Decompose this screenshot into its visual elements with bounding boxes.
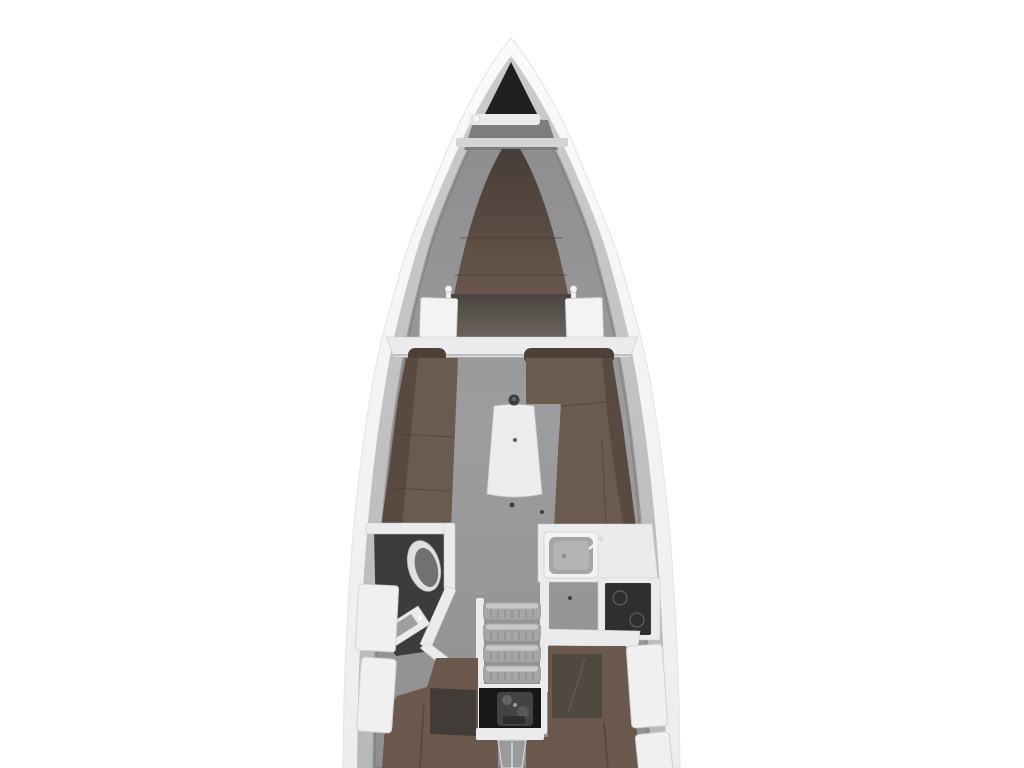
head-inboard-wall	[444, 523, 455, 590]
floor-fitting-2	[540, 510, 544, 514]
bow-cross-beam	[456, 138, 568, 147]
floor-fitting-1	[510, 503, 515, 508]
wardrobe-door-starboard	[565, 297, 604, 342]
engine-cap	[513, 703, 517, 707]
aft-berth-port-panel	[430, 688, 476, 736]
galley-aft-counter	[546, 629, 640, 647]
galley-sink-basin-inner	[553, 541, 589, 570]
companionway-tread-4	[484, 665, 541, 683]
yacht-layout-plan	[0, 0, 1024, 768]
galley-faucet-base	[599, 537, 604, 542]
table-pedestal-highlight	[512, 397, 516, 401]
engine-aft-bulkhead	[476, 728, 544, 740]
windlass-knob	[472, 115, 480, 123]
aft-locker-port	[356, 657, 396, 733]
aft-locker-starboard-1	[626, 644, 668, 728]
galley-floor-fitting	[568, 596, 572, 600]
engine-pulley-1	[502, 695, 512, 705]
head-faucet	[418, 616, 422, 620]
companionway-tread-1	[484, 602, 541, 620]
stove-top	[605, 583, 651, 635]
engine-manifold	[503, 716, 525, 724]
port-side-locker	[355, 584, 398, 652]
bulkhead-walkway-floor	[451, 294, 571, 342]
table-screw	[513, 438, 517, 442]
windlass-bar	[470, 114, 540, 125]
saloon-table	[487, 405, 542, 498]
head-forward-wall	[366, 523, 454, 534]
wardrobe-door-port	[419, 297, 458, 342]
engine-compartment	[473, 684, 547, 734]
companionway-rail-starboard	[541, 598, 549, 692]
screenshot-root	[0, 0, 1024, 768]
companionway-tread-2	[484, 623, 541, 641]
sink-drain	[562, 554, 566, 558]
companionway-tread-3	[484, 644, 541, 662]
aft-locker-starboard-2	[635, 731, 673, 768]
